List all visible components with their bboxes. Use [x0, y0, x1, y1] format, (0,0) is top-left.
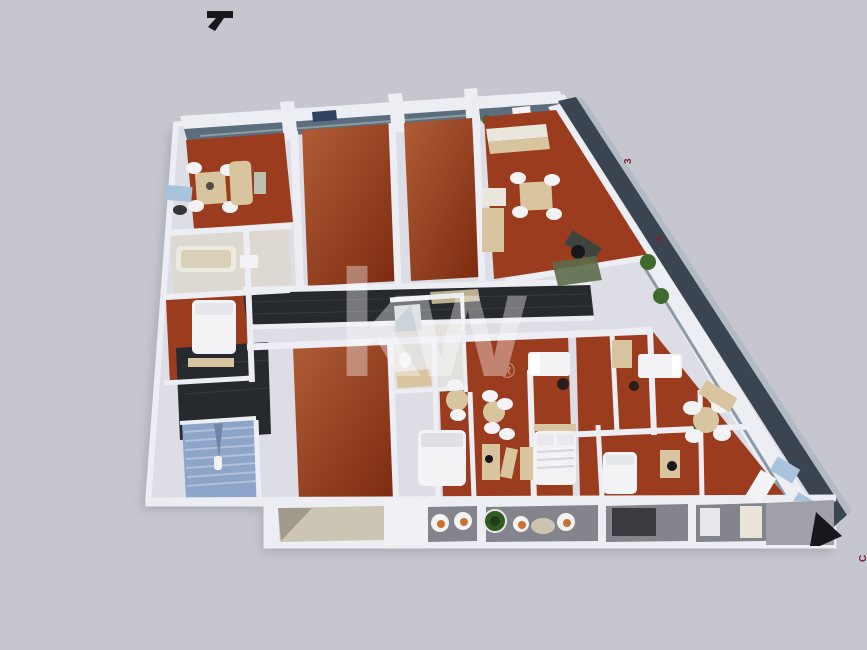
section-marker-3: 3: [623, 158, 634, 164]
desk-chair: [173, 205, 187, 215]
bed: [603, 452, 637, 494]
sofa: [229, 160, 253, 205]
stairwell: [182, 419, 257, 499]
room-living-2: [404, 118, 480, 281]
cabinet: [482, 444, 518, 480]
balcony-strip: [266, 500, 842, 546]
stair-landing-object: [214, 456, 222, 470]
building: [148, 88, 852, 546]
room-living-bottom: [293, 342, 396, 501]
plant-icon: [653, 288, 669, 304]
balcony-lounger: [312, 110, 337, 122]
section-marker-a: A: [655, 235, 666, 242]
floorplan-render: 3 A C: [0, 0, 867, 650]
desk: [660, 450, 680, 478]
room-living-1: [302, 124, 398, 286]
desk: [165, 185, 192, 202]
plant-icon: [640, 254, 656, 270]
floorplan-screenshot: 3 A C kw®: [0, 0, 867, 650]
bed: [418, 430, 466, 486]
section-marker-c: C: [858, 555, 867, 562]
plant-icon: [484, 510, 506, 532]
orientation-arrow-icon: [207, 11, 233, 31]
cabinet: [254, 172, 266, 194]
round-rug: [531, 518, 555, 534]
